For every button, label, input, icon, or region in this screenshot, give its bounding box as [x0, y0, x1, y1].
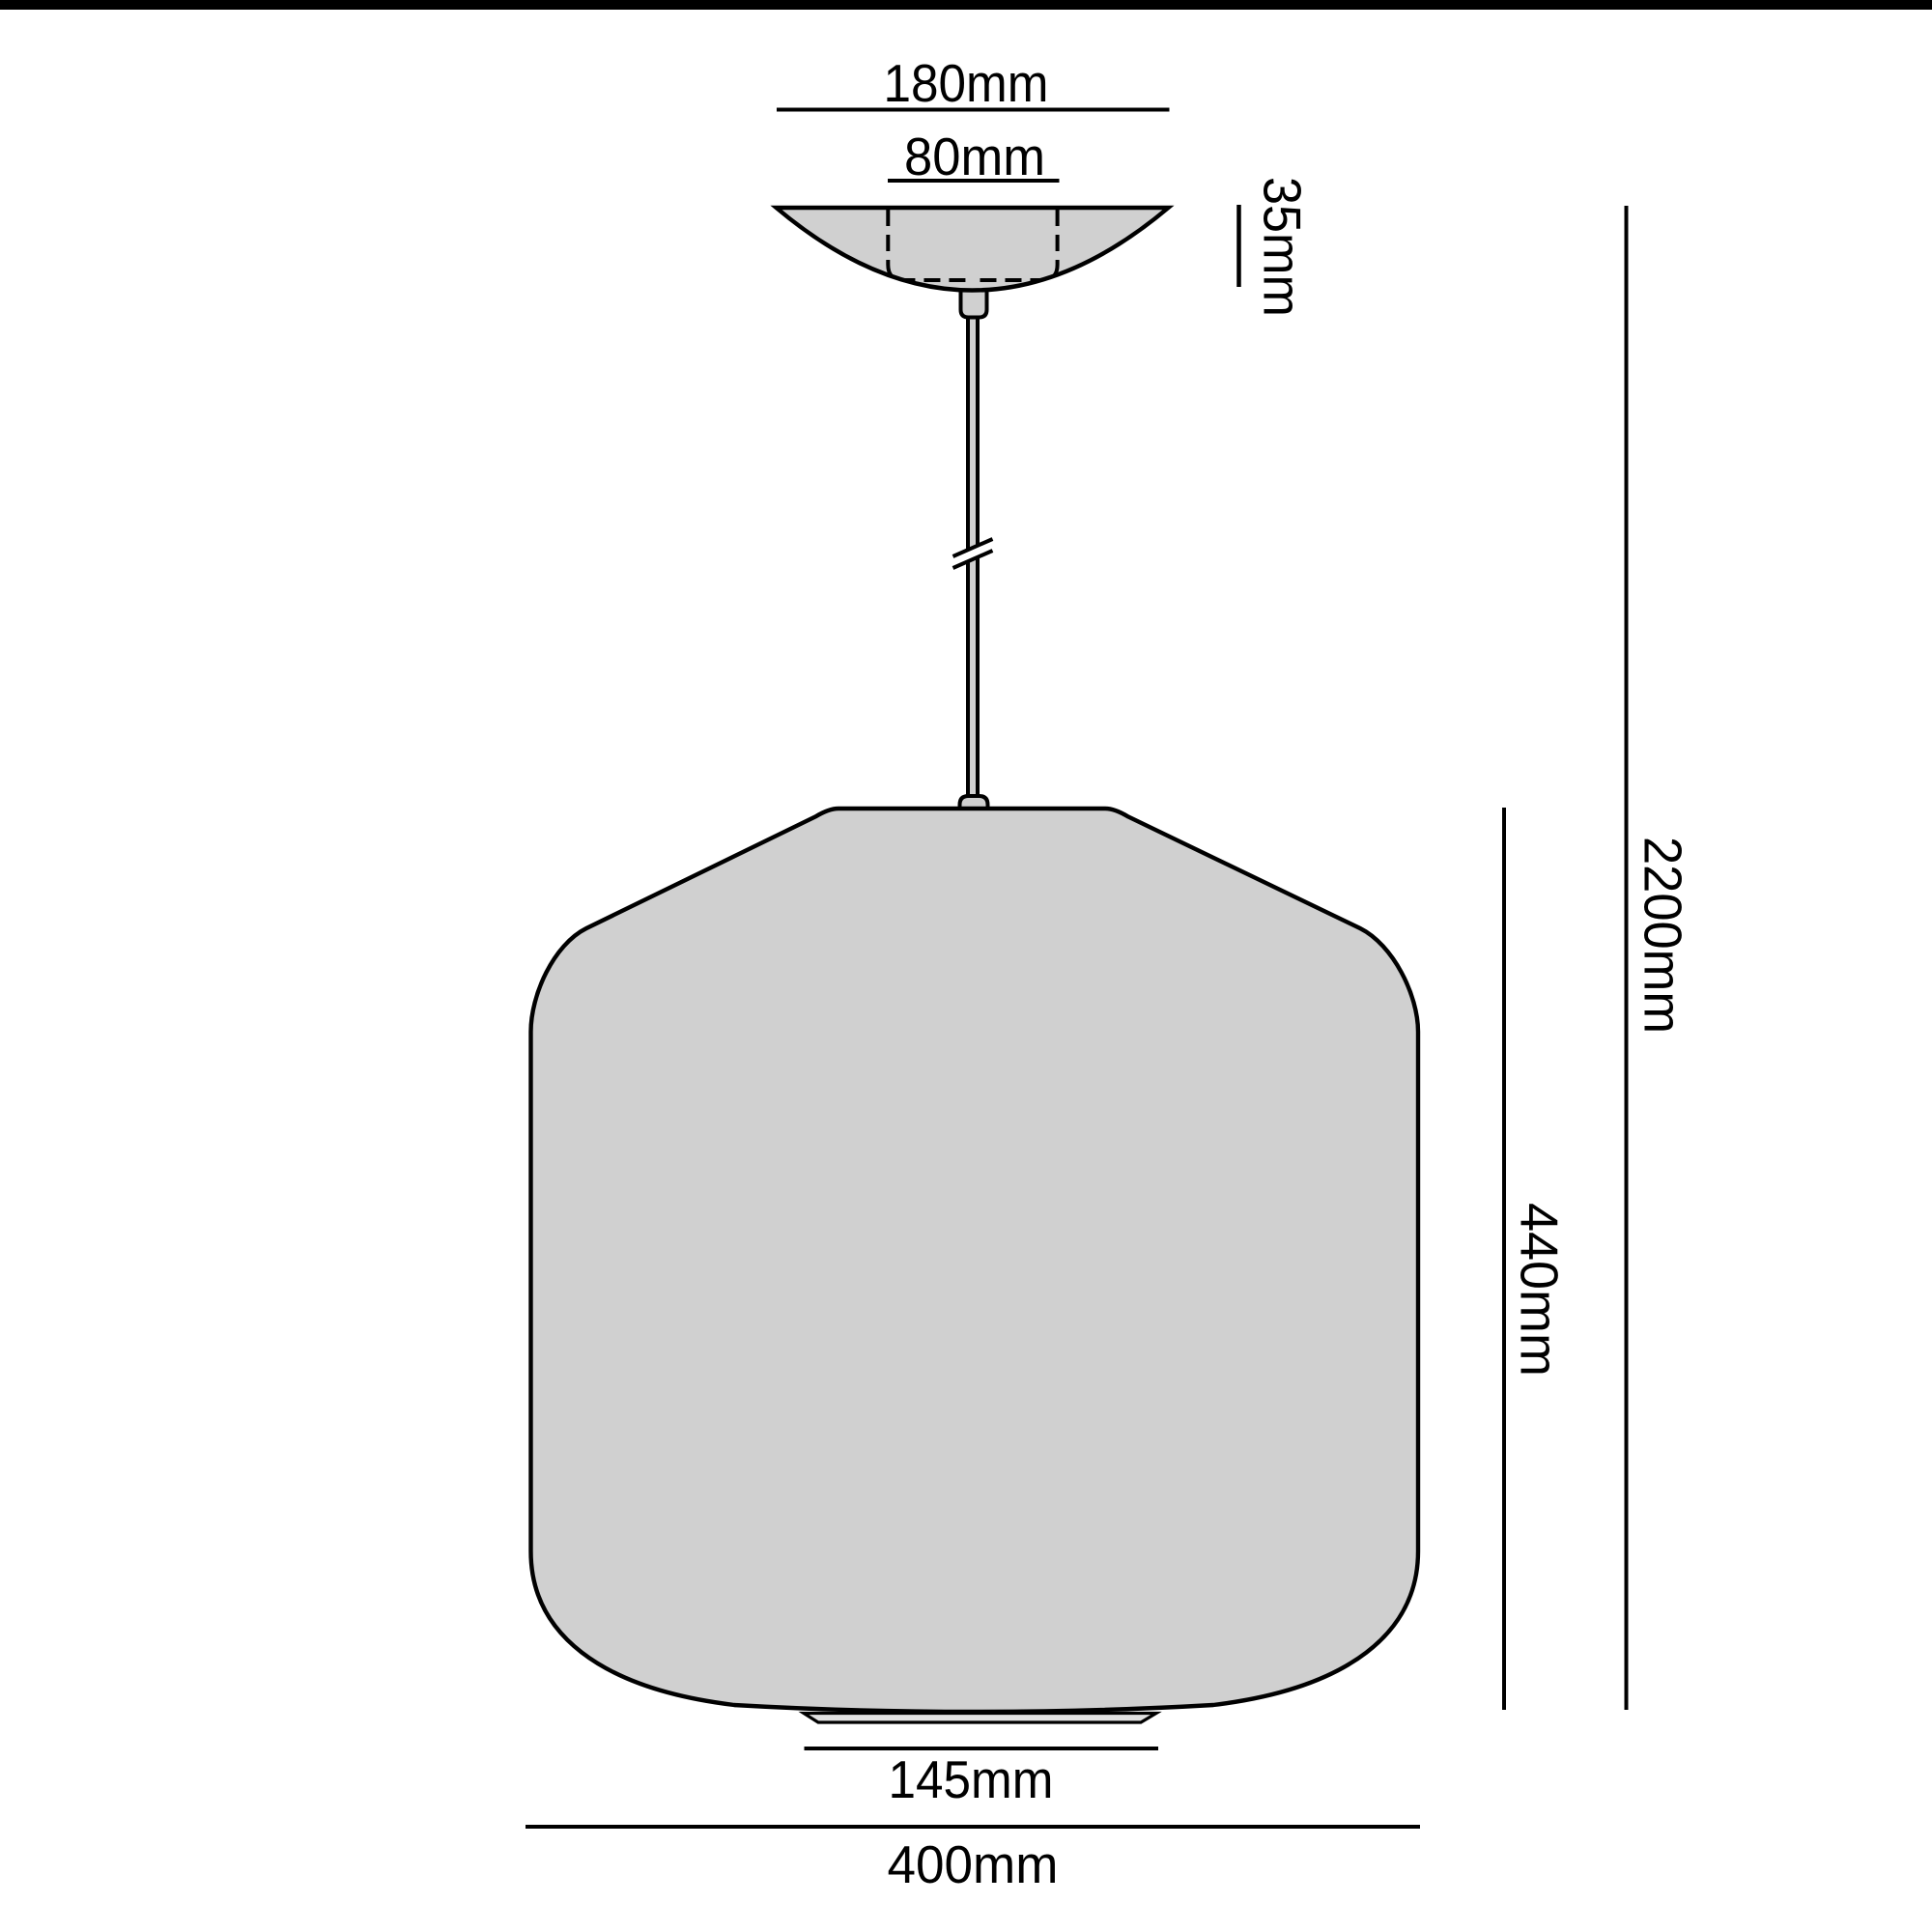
svg-text:145mm: 145mm — [889, 1749, 1054, 1809]
svg-text:80mm: 80mm — [904, 127, 1045, 186]
svg-text:2200mm: 2200mm — [1634, 837, 1693, 1034]
svg-text:35mm: 35mm — [1253, 177, 1313, 317]
svg-text:440mm: 440mm — [1510, 1203, 1570, 1377]
svg-text:180mm: 180mm — [884, 53, 1049, 113]
svg-text:400mm: 400mm — [888, 1834, 1059, 1894]
